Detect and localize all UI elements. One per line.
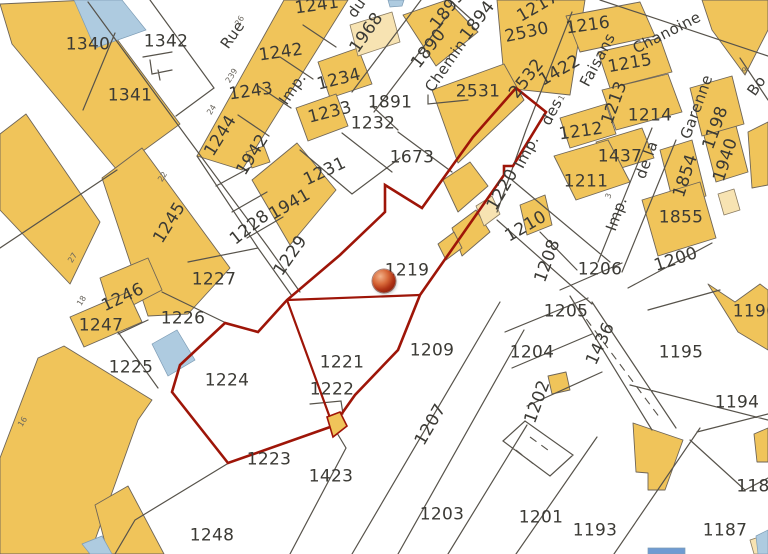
small-building-in-selection	[327, 412, 347, 437]
cadastral-map-viewport[interactable]: 1340134213411242124112431244124512461247…	[0, 0, 768, 554]
location-marker[interactable]	[373, 270, 396, 293]
